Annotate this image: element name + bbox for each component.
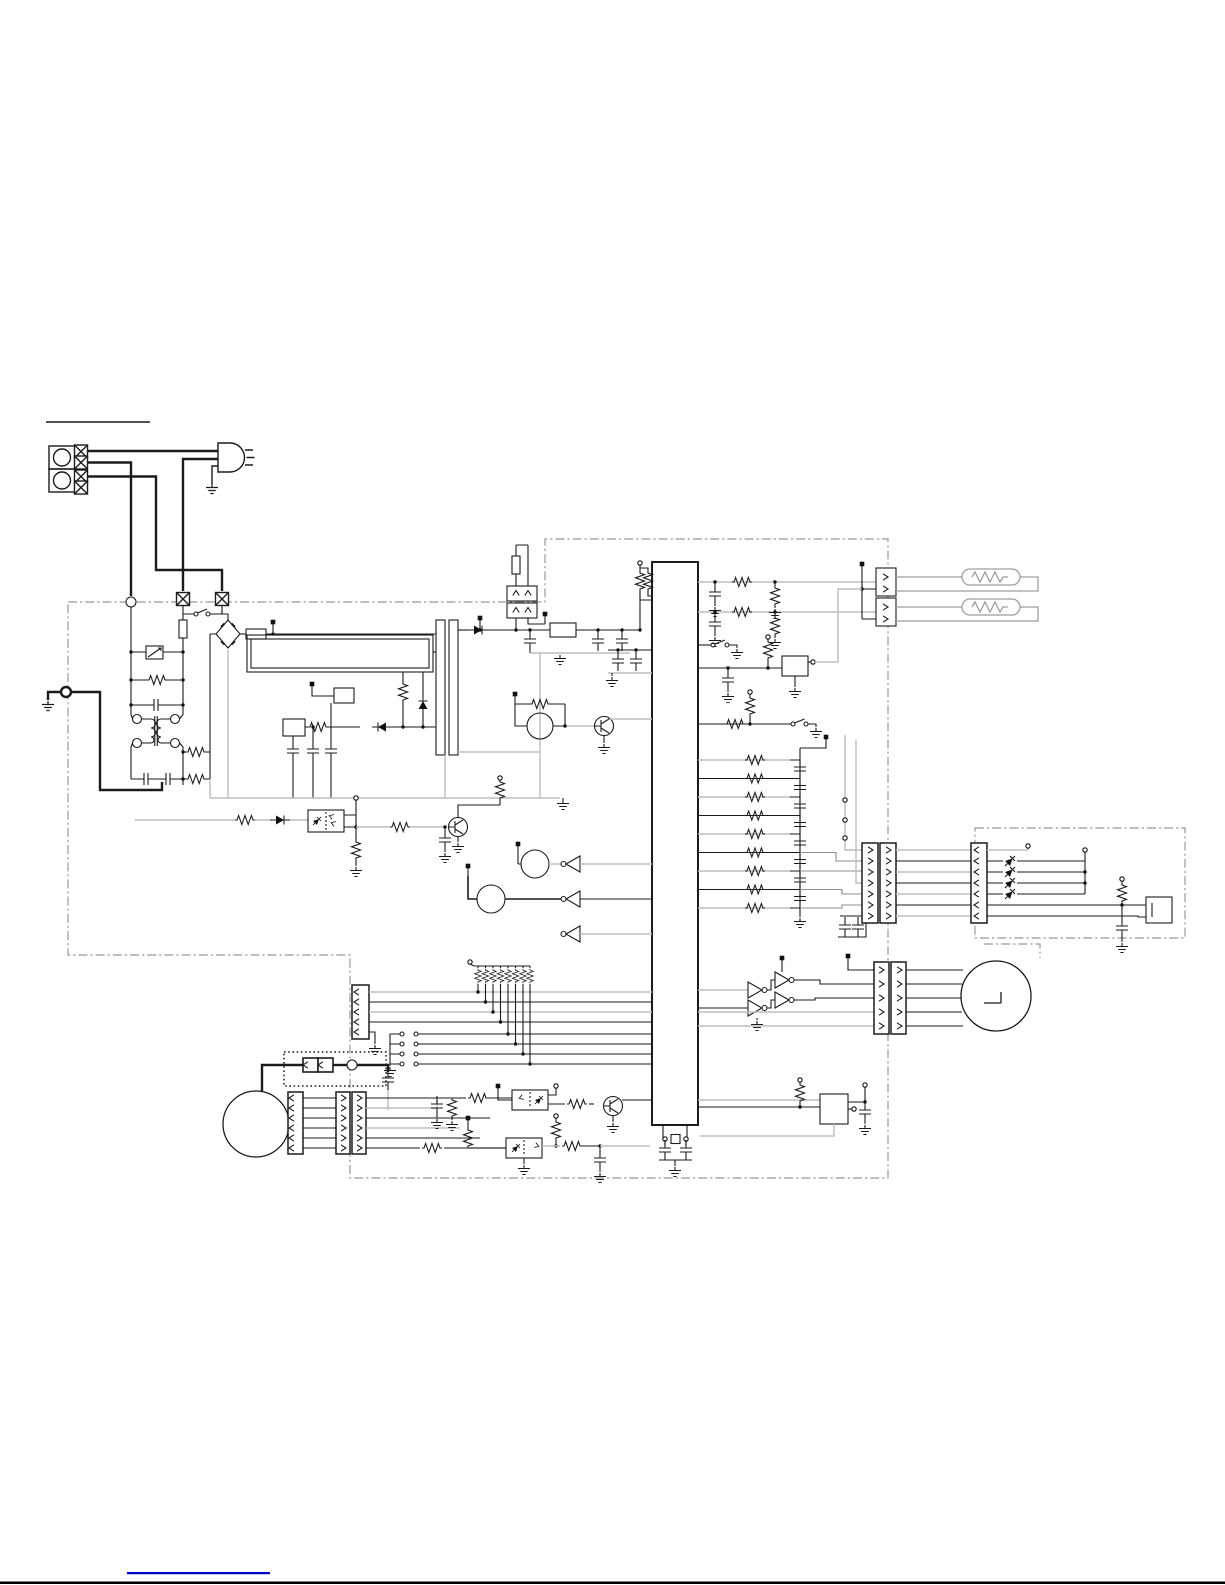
power-switch — [183, 606, 222, 620]
board-outline-fragment — [984, 944, 1040, 958]
ladder-to-display-wires — [896, 850, 971, 916]
led-1 — [1003, 854, 1018, 869]
smps-controller — [283, 672, 436, 798]
filter-capacitor — [131, 699, 183, 711]
thermal-fuse — [512, 556, 520, 574]
x-capacitors — [131, 773, 183, 785]
footer-link-rule[interactable] — [127, 1572, 270, 1574]
ladder-connector-pair — [862, 843, 896, 923]
thermistor-1 — [516, 842, 652, 878]
key-connector — [352, 985, 369, 1039]
ac-terminal-block — [49, 445, 88, 494]
plug-earth-icon — [206, 484, 218, 494]
bridge-rectifier — [210, 611, 436, 648]
mcu-decoupling — [606, 648, 652, 686]
thermal-cutout — [262, 1052, 394, 1110]
resistor-ladder — [698, 735, 866, 937]
led-2 — [1003, 865, 1018, 880]
main-ic — [652, 562, 698, 1125]
relay-driver — [698, 589, 862, 703]
mcu-supply-resistors — [636, 561, 653, 632]
crystal-oscillator — [659, 1125, 692, 1177]
thermistor-2 — [466, 864, 652, 913]
inverter-6 — [775, 992, 794, 1008]
thermal-fuse-connector — [507, 545, 547, 632]
schematic-page — [0, 0, 1225, 1585]
inverter-5 — [748, 1000, 767, 1016]
varistor — [131, 646, 183, 659]
dc-motor — [223, 1091, 289, 1157]
stepper-drivers — [698, 954, 874, 1031]
line-fuse — [179, 620, 187, 638]
mains-entry-node — [126, 597, 136, 607]
heater-connectors — [860, 562, 896, 626]
display-board — [971, 843, 1172, 953]
bleed-resistors — [183, 634, 210, 784]
board-outline-main — [68, 539, 888, 1178]
motor-wires — [303, 1096, 490, 1148]
heater-2 — [896, 599, 1038, 621]
stepper-motor — [906, 961, 1031, 1031]
power-relay-block — [247, 635, 433, 672]
circuit-schematic — [0, 0, 1225, 1585]
smps-transformer — [433, 620, 458, 755]
inverter-3 — [748, 982, 767, 998]
heater-drive-rc — [698, 578, 876, 649]
inverter-2 — [561, 891, 580, 907]
motor-board-connector — [336, 1092, 366, 1154]
reset-ic — [698, 1078, 871, 1136]
mains-filter — [129, 607, 210, 785]
line-filter-transformer — [133, 715, 180, 748]
inverter-1 — [561, 856, 580, 872]
led-4 — [1003, 887, 1018, 902]
inverter-4 — [775, 972, 794, 988]
key-switches — [384, 1032, 652, 1077]
temp-sensor-main — [513, 692, 652, 754]
filter-resistor — [131, 676, 183, 685]
spare-inverter — [561, 926, 653, 942]
ladder-head — [698, 690, 828, 748]
motor-connector — [288, 1092, 303, 1154]
stepper-connector — [874, 962, 906, 1034]
dc-power-flag — [271, 616, 483, 636]
v-reg-section — [458, 592, 640, 665]
triac-driver-1 — [431, 1084, 652, 1133]
footer-rule — [0, 1582, 1225, 1585]
key-matrix — [369, 960, 652, 1077]
board-entry-connectors — [177, 593, 229, 606]
opto-feedback — [135, 776, 505, 877]
buzzer — [1146, 897, 1172, 923]
voltage-regulator — [550, 623, 576, 637]
heater-1 — [896, 569, 1038, 591]
led-3 — [1003, 876, 1018, 891]
ac-wiring — [88, 451, 223, 596]
